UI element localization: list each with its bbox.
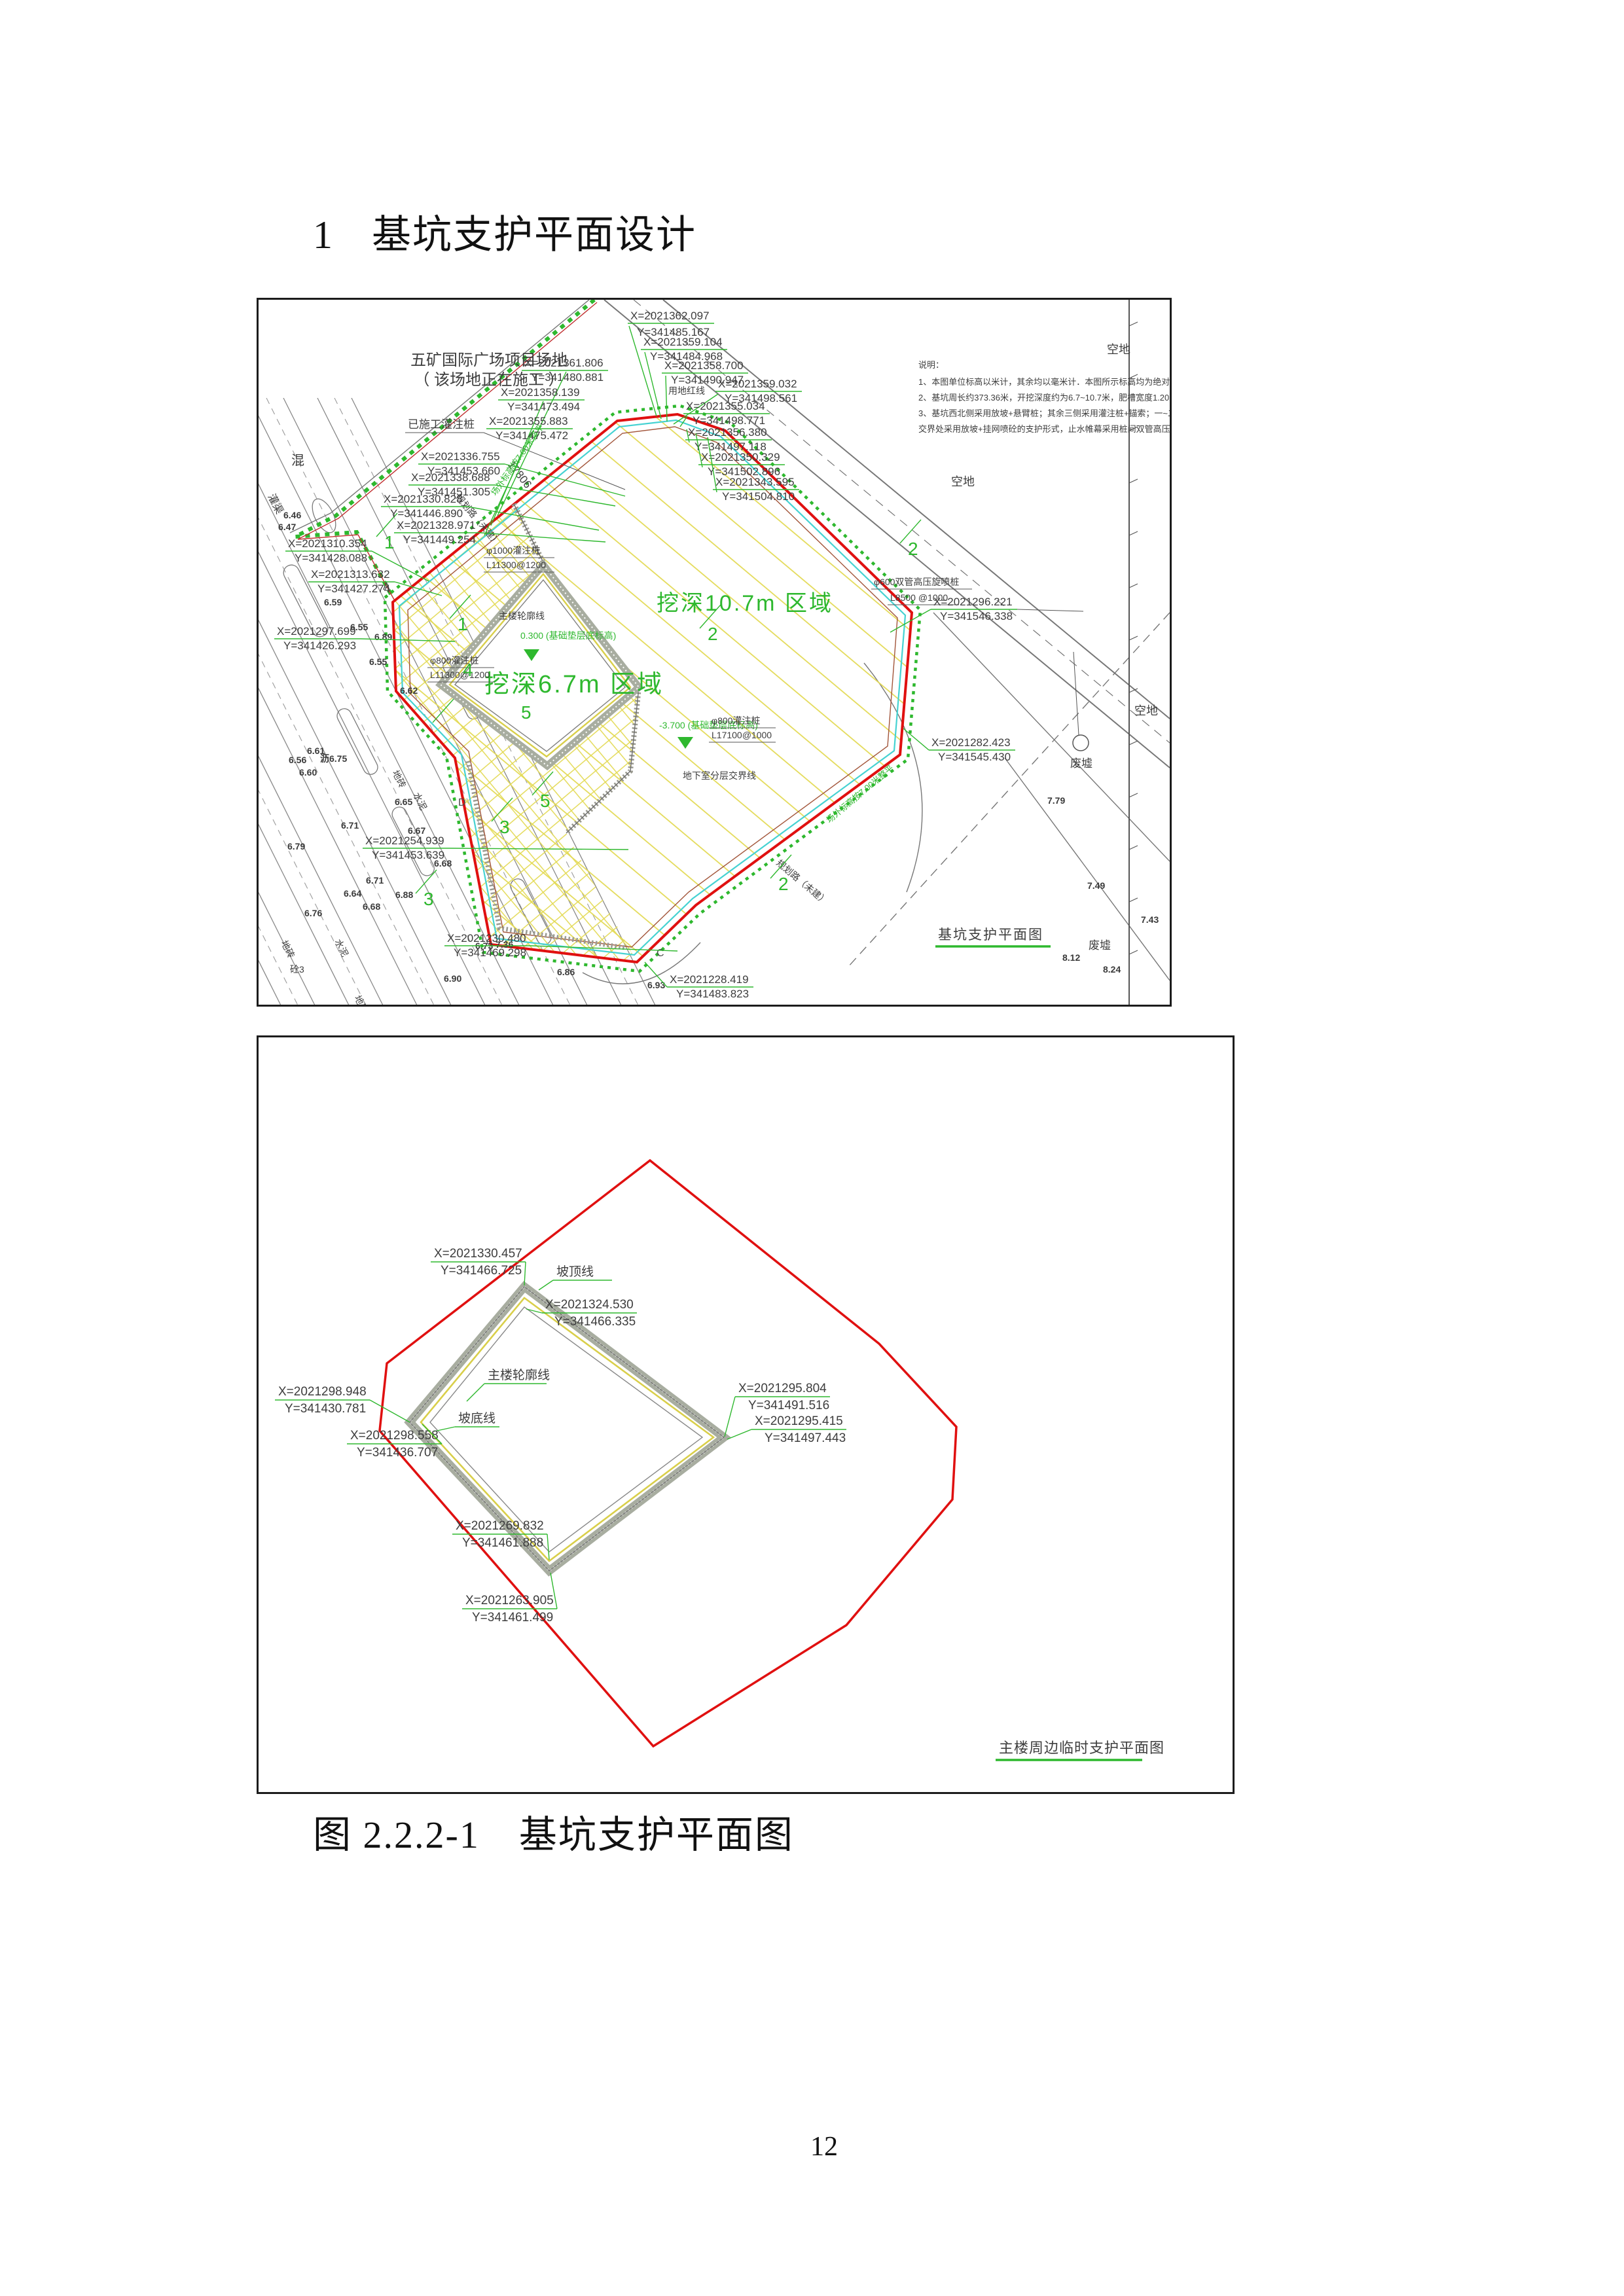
svg-text:X=2021361.806: X=2021361.806 xyxy=(524,357,604,369)
svg-text:6.46: 6.46 xyxy=(283,510,301,520)
svg-text:Y=341497.443: Y=341497.443 xyxy=(765,1431,846,1445)
svg-text:6.71: 6.71 xyxy=(341,820,359,831)
svg-text:0.300 (基础垫层底标高): 0.300 (基础垫层底标高) xyxy=(520,630,616,641)
slope-bottom-label: 坡底线 xyxy=(458,1411,496,1426)
svg-text:X=2021254.939: X=2021254.939 xyxy=(365,834,444,847)
svg-text:L11300@1200: L11300@1200 xyxy=(486,560,546,570)
svg-text:Y=341469.298: Y=341469.298 xyxy=(454,946,526,959)
svg-text:X=2021313.632: X=2021313.632 xyxy=(311,568,390,581)
svg-text:6.62: 6.62 xyxy=(400,685,418,696)
svg-text:X=2021324.530: X=2021324.530 xyxy=(545,1298,634,1312)
svg-text:7.79: 7.79 xyxy=(1047,795,1065,806)
drawing2-title: 主楼周边临时支护平面图 xyxy=(999,1740,1164,1756)
tower-outline-label: 主楼轮廓线 xyxy=(499,611,545,621)
svg-text:5: 5 xyxy=(540,791,550,811)
svg-text:4: 4 xyxy=(463,660,473,680)
svg-text:6.71: 6.71 xyxy=(366,875,384,886)
constructed-pile-label: 已施工灌注桩 xyxy=(408,418,475,431)
svg-text:Y=341449.254: Y=341449.254 xyxy=(403,533,476,546)
svg-text:8.24: 8.24 xyxy=(1103,964,1121,975)
pit-support-plan-drawing: 挖深10.7m 区域 挖深6.7m 区域 0.300 (基础垫层底标高) -3.… xyxy=(259,300,1170,1005)
svg-text:2: 2 xyxy=(778,874,789,894)
svg-text:X=2021310.354: X=2021310.354 xyxy=(288,537,367,550)
svg-text:X=2021295.415: X=2021295.415 xyxy=(755,1414,843,1428)
shallow-zone-label: 挖深6.7m 区域 xyxy=(484,671,664,698)
svg-text:6.60: 6.60 xyxy=(299,767,317,778)
svg-text:Y=341504.810: Y=341504.810 xyxy=(722,490,795,503)
svg-text:X=2021359.104: X=2021359.104 xyxy=(643,336,723,348)
svg-text:Y=341461.888: Y=341461.888 xyxy=(462,1536,543,1550)
svg-text:X=2021362.097: X=2021362.097 xyxy=(630,310,710,322)
slope-top-label: 坡顶线 xyxy=(556,1265,594,1279)
notes-block: 说明： 1、本图单位标高以米计，其余均以毫米计．本图所示标高均为绝对标高． 2、… xyxy=(918,360,1170,434)
svg-text:C: C xyxy=(657,948,664,959)
svg-text:Y=341461.499: Y=341461.499 xyxy=(472,1611,553,1624)
ruins-label-1: 废墟 xyxy=(1070,757,1092,770)
survey-point-symbol xyxy=(1073,735,1089,751)
drawing2-title-block: 主楼周边临时支护平面图 xyxy=(996,1740,1164,1760)
svg-text:X=2021297.699: X=2021297.699 xyxy=(277,625,356,637)
svg-text:X=2021343.595: X=2021343.595 xyxy=(715,476,795,488)
svg-text:1: 1 xyxy=(458,614,468,634)
svg-text:Y=341546.338: Y=341546.338 xyxy=(940,610,1013,622)
heading-text: 基坑支护平面设计 xyxy=(372,213,696,257)
svg-text:D: D xyxy=(458,797,466,808)
street-label-4: 砼3 xyxy=(290,964,304,975)
section-heading: 1基坑支护平面设计 xyxy=(313,203,696,260)
page-number: 12 xyxy=(810,2131,838,2162)
svg-text:5: 5 xyxy=(521,702,532,723)
coordinate-callout: X=2021355.034Y=341498.771 xyxy=(680,400,770,427)
heading-number: 1 xyxy=(313,213,334,257)
street-label-2: 地砖 xyxy=(279,939,297,960)
svg-text:3: 3 xyxy=(499,817,510,837)
svg-text:1、本图单位标高以米计，其余均以毫米计．本图所示标高均为绝对: 1、本图单位标高以米计，其余均以毫米计．本图所示标高均为绝对标高． xyxy=(918,377,1170,387)
survey-point-stem xyxy=(1074,652,1079,735)
svg-text:X=2021355.034: X=2021355.034 xyxy=(686,400,765,412)
svg-text:X=2021358.139: X=2021358.139 xyxy=(501,386,580,399)
coordinate-callouts-2: X=2021330.457Y=341466.725 坡顶线 X=2021324.… xyxy=(275,1247,846,1624)
coordinate-callout: X=2021295.415Y=341497.443 xyxy=(727,1414,846,1445)
drawing-1-frame: 挖深10.7m 区域 挖深6.7m 区域 0.300 (基础垫层底标高) -3.… xyxy=(257,298,1172,1007)
coordinate-callout: X=2021330.457Y=341466.725 xyxy=(431,1247,526,1285)
svg-text:Y=341491.516: Y=341491.516 xyxy=(748,1399,829,1412)
svg-text:说明：: 说明： xyxy=(918,360,944,370)
svg-text:φ800灌注桩: φ800灌注桩 xyxy=(712,715,760,726)
svg-text:Y=341430.781: Y=341430.781 xyxy=(285,1402,366,1416)
drawing-2-frame: X=2021330.457Y=341466.725 坡顶线 X=2021324.… xyxy=(257,1035,1235,1794)
svg-text:6.59: 6.59 xyxy=(324,597,342,607)
svg-text:6.55: 6.55 xyxy=(369,656,387,667)
street-label-1: 水泥 xyxy=(411,791,429,812)
svg-text:X=2021358.700: X=2021358.700 xyxy=(664,359,744,372)
svg-text:X=2021228.419: X=2021228.419 xyxy=(670,973,749,986)
coordinate-callout: X=2021356.380Y=341497.118 xyxy=(685,426,772,453)
svg-text:6.47: 6.47 xyxy=(278,522,296,532)
svg-text:6.90: 6.90 xyxy=(444,973,461,984)
svg-text:Y=341480.881: Y=341480.881 xyxy=(531,371,604,384)
svg-text:2: 2 xyxy=(708,624,718,644)
svg-text:6.68: 6.68 xyxy=(363,901,380,912)
svg-text:Y=341436.707: Y=341436.707 xyxy=(357,1446,438,1460)
svg-text:X=2021230.480: X=2021230.480 xyxy=(447,932,526,944)
svg-text:X=2021263.905: X=2021263.905 xyxy=(465,1594,554,1607)
svg-text:X=2021269.832: X=2021269.832 xyxy=(456,1519,544,1533)
svg-text:Y=341545.430: Y=341545.430 xyxy=(938,751,1011,763)
svg-text:3: 3 xyxy=(424,889,434,909)
empty-land-label-1: 空地 xyxy=(1107,343,1130,356)
svg-text:6.89: 6.89 xyxy=(374,632,392,642)
svg-text:6.65: 6.65 xyxy=(395,797,412,807)
tower-temporary-support-drawing: X=2021330.457Y=341466.725 坡顶线 X=2021324.… xyxy=(259,1037,1233,1792)
svg-text:Y=341466.335: Y=341466.335 xyxy=(554,1315,636,1329)
deep-zone-label: 挖深10.7m 区域 xyxy=(657,591,833,616)
svg-text:X=2021359.032: X=2021359.032 xyxy=(718,378,797,390)
empty-land-label-3: 空地 xyxy=(1134,704,1158,717)
svg-text:Y=341428.088: Y=341428.088 xyxy=(295,552,367,564)
basement-boundary-label: 地下室分层交界线 xyxy=(683,770,756,781)
svg-text:Y=341427.274: Y=341427.274 xyxy=(317,583,390,595)
slope-top-callout: 坡顶线 xyxy=(539,1265,612,1290)
svg-text:Y=341475.472: Y=341475.472 xyxy=(496,429,568,442)
red-line-label: 用地红线 xyxy=(668,386,705,396)
svg-text:Y=341473.494: Y=341473.494 xyxy=(507,401,580,413)
svg-text:X=2021328.971: X=2021328.971 xyxy=(397,519,476,531)
svg-text:X=2021356.380: X=2021356.380 xyxy=(688,426,767,439)
svg-text:6.76: 6.76 xyxy=(304,908,322,918)
tower-outline-callout: 主楼轮廓线 xyxy=(467,1368,550,1401)
svg-text:X=2021338.688: X=2021338.688 xyxy=(411,471,490,484)
svg-text:6.93: 6.93 xyxy=(647,980,665,990)
empty-land-label-2: 空地 xyxy=(951,475,975,488)
coordinate-callout: X=2021298.948Y=341430.781 xyxy=(275,1385,410,1422)
drawing1-title: 基坑支护平面图 xyxy=(938,927,1043,942)
svg-text:8.12: 8.12 xyxy=(1062,952,1080,963)
svg-text:2: 2 xyxy=(908,539,918,559)
svg-text:6.79: 6.79 xyxy=(287,841,305,852)
concrete-label: 混 xyxy=(291,453,304,468)
svg-text:6.64: 6.64 xyxy=(344,888,361,899)
svg-text:X=2021330.457: X=2021330.457 xyxy=(434,1247,522,1261)
svg-text:Y=341466.725: Y=341466.725 xyxy=(441,1264,522,1278)
street-label-0: 地砖 xyxy=(390,768,408,789)
svg-text:Y=341483.823: Y=341483.823 xyxy=(676,988,749,1000)
svg-text:L17100@1000: L17100@1000 xyxy=(712,730,772,740)
svg-text:X=2021336.755: X=2021336.755 xyxy=(421,450,500,463)
drawing1-title-block: 基坑支护平面图 xyxy=(935,927,1051,946)
svg-text:X=2021282.423: X=2021282.423 xyxy=(931,736,1011,749)
ruins-label-2: 废墟 xyxy=(1089,939,1111,952)
svg-text:X=2021296.221: X=2021296.221 xyxy=(933,596,1013,608)
svg-text:L11300@1200: L11300@1200 xyxy=(430,670,490,680)
svg-text:Y=341498.771: Y=341498.771 xyxy=(693,414,765,427)
svg-text:6.88: 6.88 xyxy=(395,889,413,900)
figure-caption: 图 2.2.2-1 基坑支护平面图 xyxy=(313,1804,794,1859)
svg-text:X=2021330.828: X=2021330.828 xyxy=(384,493,463,505)
slope-bottom-callout: 坡底线 xyxy=(434,1411,499,1431)
svg-text:Y=341446.890: Y=341446.890 xyxy=(390,507,463,520)
svg-text:X=2021298.558: X=2021298.558 xyxy=(350,1429,439,1443)
svg-text:Y=341426.293: Y=341426.293 xyxy=(283,639,356,652)
svg-text:X=2021350.329: X=2021350.329 xyxy=(701,451,780,463)
tower-outline-label: 主楼轮廓线 xyxy=(488,1368,550,1382)
svg-text:1: 1 xyxy=(384,532,395,552)
svg-text:3、基坑西北侧采用放坡+悬臂桩；其余三侧采用灌注桩+锚索；一: 3、基坑西北侧采用放坡+悬臂桩；其余三侧采用灌注桩+锚索；一~二层地下室 xyxy=(918,408,1170,419)
svg-text:7.49: 7.49 xyxy=(1087,880,1105,891)
svg-text:7.43: 7.43 xyxy=(1141,914,1159,925)
street-label-3: 水泥 xyxy=(333,937,350,958)
svg-text:X=2021298.948: X=2021298.948 xyxy=(278,1385,367,1399)
svg-text:φ600双管高压旋喷桩: φ600双管高压旋喷桩 xyxy=(874,577,959,587)
coordinate-callout: X=2021298.558Y=341436.707 xyxy=(347,1424,442,1460)
coordinate-callout: X=2021282.423Y=341545.430 xyxy=(903,728,1015,763)
svg-text:φ1000灌注桩: φ1000灌注桩 xyxy=(486,545,540,556)
coordinate-callout: X=2021295.804Y=341491.516 xyxy=(725,1382,830,1437)
svg-text:2、基坑周长约373.36米，开挖深度约为6.7~10.7米: 2、基坑周长约373.36米，开挖深度约为6.7~10.7米，肥槽宽度1.20米… xyxy=(918,393,1170,403)
svg-text:Y=341453.639: Y=341453.639 xyxy=(372,849,444,861)
svg-text:6.56: 6.56 xyxy=(289,755,306,765)
svg-text:6.86: 6.86 xyxy=(557,967,575,977)
svg-text:X=2021355.883: X=2021355.883 xyxy=(489,415,568,427)
svg-text:沥6.75: 沥6.75 xyxy=(320,753,347,764)
document-page: 1基坑支护平面设计 xyxy=(0,0,1624,2296)
street-label-5: 地砖 xyxy=(352,994,370,1005)
svg-text:交界处采用放坡+挂网喷砼的支护形式，止水帷幕采用桩间双管高压: 交界处采用放坡+挂网喷砼的支护形式，止水帷幕采用桩间双管高压旋喷桩． xyxy=(918,424,1170,434)
svg-text:X=2021295.804: X=2021295.804 xyxy=(738,1382,827,1395)
